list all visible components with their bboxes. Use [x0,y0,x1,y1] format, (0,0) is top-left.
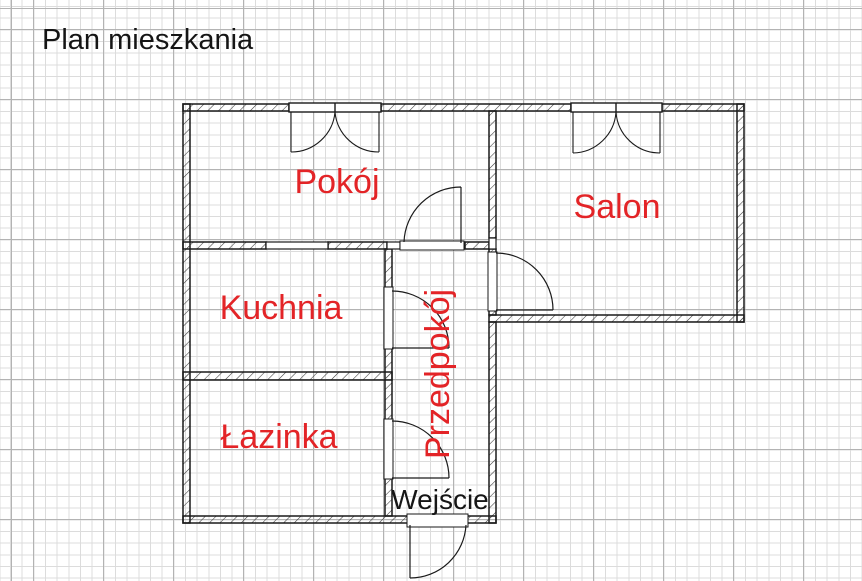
wall-bottom-left-segment [183,516,408,523]
room-label-kuchnia: Kuchnia [220,291,343,325]
wall-pokoj-bottom-a [183,242,266,249]
door-threshold-icon [407,514,468,527]
room-label-salon: Salon [574,190,661,224]
wall-divider-middle [385,348,392,420]
room-label-przedpokoj: Przedpokój [421,289,455,459]
wall-salon-left-upper [489,111,496,238]
door-swing-icon [404,187,461,243]
wall-junction-divider [387,242,400,249]
door-threshold-icon [384,287,393,349]
wall-przedpokoj-right [489,322,496,523]
pokoj-wall-opening [266,242,328,249]
wall-divider-upper [385,249,392,288]
door-threshold-icon [488,252,497,311]
wall-salon-right [737,104,744,322]
salon-window [571,103,662,153]
pokoj-door [400,187,464,250]
wall-pokoj-bottom-c [465,242,489,249]
window-sash-left-icon [573,112,616,153]
room-label-lazinka: Łazinka [220,420,337,454]
door-swing-icon [410,525,466,578]
door-swing-icon [496,253,553,310]
wall-left [183,104,190,523]
window-sash-right-icon [616,112,660,153]
floor-plan-canvas: Plan mieszkania [0,0,862,581]
wall-top-middle-segment [381,104,571,111]
pokoj-window [289,103,381,152]
room-label-pokoj: Pokój [294,165,379,199]
wall-salon-bottom [489,315,744,322]
wall-top-right-segment [662,104,744,111]
wall-kuchnia-bottom [183,372,392,380]
window-sash-left-icon [291,112,335,152]
wall-junction-salon [489,238,496,249]
entrance-label: Wejście [391,486,489,514]
door-threshold-icon [400,241,464,250]
wall-pokoj-bottom-b [328,242,387,249]
salon-door [488,252,553,311]
window-sash-right-icon [335,112,379,152]
entry-door [407,514,468,578]
door-threshold-icon [384,419,393,479]
wall-top-left-segment [183,104,289,111]
wall-bottom-right-segment [467,516,496,523]
